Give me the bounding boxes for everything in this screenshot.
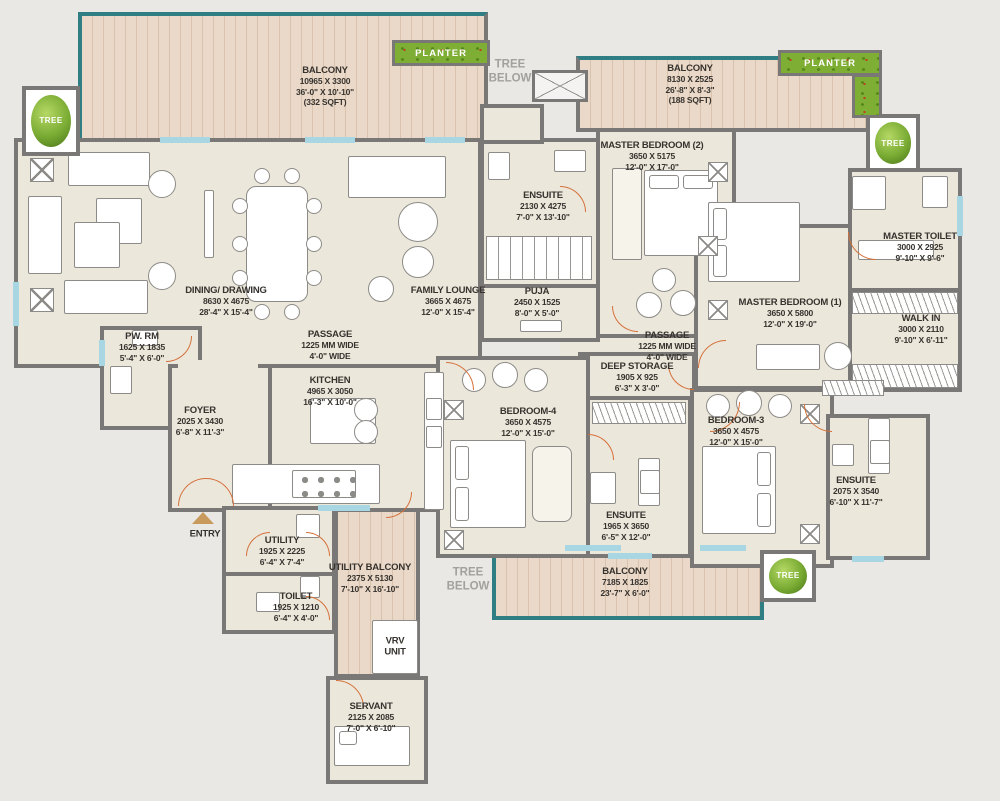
window bbox=[13, 282, 19, 326]
tree-label: TREE bbox=[881, 139, 904, 148]
tree-box-bottom: TREE bbox=[760, 550, 816, 602]
label-tree-below-top: TREE BELOW bbox=[480, 58, 540, 87]
planter-label: PLANTER bbox=[415, 48, 467, 59]
tv-unit-icon bbox=[204, 190, 214, 258]
toilet-wc-icon bbox=[110, 366, 132, 394]
bed-icon bbox=[450, 440, 526, 528]
label-bedroom-3: BEDROOM-33650 X 4575 12'-0" X 15'-0" bbox=[708, 415, 764, 447]
wardrobe-hatch bbox=[822, 380, 884, 396]
shower-icon bbox=[852, 176, 886, 210]
label-master-bedroom-2: MASTER BEDROOM (2)3650 X 5175 12'-0" X 1… bbox=[600, 140, 703, 172]
label-kitchen: KITCHEN4965 X 3050 16'-3" X 10'-0" bbox=[303, 375, 357, 407]
label-deep-storage: DEEP STORAGE1905 X 925 6'-3" X 3'-0" bbox=[601, 361, 674, 393]
sofa-icon bbox=[348, 156, 446, 198]
tree-label: TREE bbox=[39, 116, 62, 125]
shower-icon bbox=[832, 444, 854, 466]
label-dining-drawing: DINING/ DRAWING8630 X 4675 28'-4" X 15'-… bbox=[185, 285, 266, 317]
window bbox=[160, 137, 210, 143]
window bbox=[700, 545, 746, 551]
elevator-shaft-icon bbox=[532, 70, 588, 102]
shower-icon bbox=[590, 472, 616, 504]
dining-chair-icon bbox=[284, 304, 300, 320]
armchair-icon bbox=[768, 394, 792, 418]
dining-chair-icon bbox=[254, 168, 270, 184]
toilet-wc-icon bbox=[488, 152, 510, 180]
side-table-icon bbox=[444, 530, 464, 550]
label-master-toilet: MASTER TOILET3000 X 2925 9'-10" X 9'-6" bbox=[883, 231, 957, 263]
toilet-wc-icon bbox=[870, 440, 890, 464]
tree-icon: TREE bbox=[31, 95, 71, 147]
dining-chair-icon bbox=[232, 236, 248, 252]
label-master-bedroom-1: MASTER BEDROOM (1)3650 X 5800 12'-0" X 1… bbox=[738, 297, 841, 329]
label-family-lounge: FAMILY LOUNGE3665 X 4675 12'-0" X 15'-4" bbox=[411, 285, 485, 317]
round-table-icon bbox=[824, 342, 852, 370]
side-table-icon bbox=[698, 236, 718, 256]
label-balcony-bottom: BALCONY7185 X 1825 23'-7" X 6'-0" bbox=[601, 566, 650, 598]
planter-label: PLANTER bbox=[804, 58, 856, 69]
tree-box-top-left: TREE bbox=[22, 86, 80, 156]
window bbox=[425, 137, 465, 143]
armchair-icon bbox=[636, 292, 662, 318]
window bbox=[565, 545, 621, 551]
side-table-icon bbox=[708, 162, 728, 182]
label-puja: PUJA2450 X 1525 8'-0" X 5'-0" bbox=[514, 286, 560, 318]
sofa-icon bbox=[64, 280, 148, 314]
dining-chair-icon bbox=[284, 168, 300, 184]
room-foyer-opening bbox=[178, 360, 258, 372]
label-entry: ENTRY bbox=[190, 528, 221, 539]
label-vrv-unit: VRV UNIT bbox=[378, 636, 412, 659]
tree-box-right: TREE bbox=[866, 114, 920, 172]
label-tree-below-bottom: TREE BELOW bbox=[438, 566, 498, 595]
dining-chair-icon bbox=[232, 198, 248, 214]
window bbox=[957, 196, 963, 236]
label-utility: UTILITY1925 X 2225 6'-4" X 7'-4" bbox=[259, 535, 305, 567]
armchair-icon bbox=[524, 368, 548, 392]
label-passage-left: PASSAGE1225 MM WIDE 4'-0" WIDE bbox=[301, 329, 359, 361]
label-balcony-top-right: BALCONY8130 X 2525 26'-8" X 8'-3"(188 SQ… bbox=[666, 63, 715, 105]
wardrobe-hatch bbox=[852, 292, 958, 314]
label-powder-room: PW. RM1625 X 1835 5'-4" X 6'-0" bbox=[119, 331, 165, 363]
pouf-icon bbox=[398, 202, 438, 242]
label-bedroom-4: BEDROOM-43650 X 4575 12'-0" X 15'-0" bbox=[500, 406, 556, 438]
tree-icon: TREE bbox=[875, 122, 912, 164]
bar-stool-icon bbox=[354, 398, 378, 422]
window bbox=[305, 137, 355, 143]
bar-stool-icon bbox=[354, 420, 378, 444]
bench-icon bbox=[756, 344, 820, 370]
bench-icon bbox=[532, 446, 572, 522]
bed-icon bbox=[708, 202, 800, 282]
planter-top: PLANTER bbox=[392, 40, 490, 66]
sink-icon bbox=[426, 398, 442, 420]
side-table-icon bbox=[30, 288, 54, 312]
puja-cabinet-icon bbox=[520, 320, 562, 332]
side-table-icon bbox=[30, 158, 54, 182]
label-balcony-top-left: BALCONY10965 X 3300 36'-0" X 10'-10"(332… bbox=[296, 65, 354, 107]
dining-chair-icon bbox=[306, 270, 322, 286]
dining-chair-icon bbox=[306, 198, 322, 214]
sofa-icon bbox=[28, 196, 62, 274]
label-toilet: TOILET1925 X 1210 6'-4" X 4'-0" bbox=[273, 591, 319, 623]
armchair-icon bbox=[148, 170, 176, 198]
tree-label: TREE bbox=[776, 571, 799, 580]
entry-arrow-icon bbox=[192, 512, 214, 524]
label-ensuite-bedroom-3: ENSUITE2075 X 3540 6'-10" X 11'-7" bbox=[829, 475, 882, 507]
armchair-icon bbox=[148, 262, 176, 290]
toilet-wc-icon bbox=[922, 176, 948, 208]
window bbox=[99, 340, 105, 366]
room-ensuite-top-lobby bbox=[480, 104, 544, 144]
armchair-icon bbox=[368, 276, 394, 302]
label-walk-in: WALK IN3000 X 2110 9'-10" X 6'-11" bbox=[894, 313, 947, 345]
side-table-icon bbox=[444, 400, 464, 420]
label-ensuite-bedroom-4: ENSUITE1965 X 3650 6'-5" X 12'-0" bbox=[602, 510, 651, 542]
label-servant: SERVANT2125 X 2085 7'-0" X 6'-10" bbox=[347, 701, 396, 733]
bed-icon bbox=[702, 446, 776, 534]
sink-icon bbox=[426, 426, 442, 448]
label-passage-right: PASSAGE1225 MM WIDE 4'-0" WIDE bbox=[638, 330, 696, 362]
floor-plan: TREE TREE TREE PLANTER PLANTER bbox=[0, 0, 1000, 801]
stairs-icon bbox=[486, 236, 592, 280]
window bbox=[608, 553, 652, 559]
toilet-wc-icon bbox=[640, 470, 660, 494]
label-utility-balcony: UTILITY BALCONY2375 X 5130 7'-10" X 16'-… bbox=[329, 562, 411, 594]
wardrobe-hatch bbox=[592, 402, 686, 424]
armchair-icon bbox=[670, 290, 696, 316]
tree-icon: TREE bbox=[769, 558, 807, 595]
round-table-icon bbox=[652, 268, 676, 292]
dining-chair-icon bbox=[306, 236, 322, 252]
planter-right: PLANTER bbox=[778, 50, 882, 76]
planter-right-arm bbox=[852, 74, 882, 118]
side-table-icon bbox=[800, 524, 820, 544]
hob-icon bbox=[292, 470, 356, 498]
rug-icon bbox=[612, 168, 642, 260]
window bbox=[852, 556, 884, 562]
window bbox=[318, 505, 370, 511]
sofa-icon bbox=[68, 152, 150, 186]
balcony-top-left-deck bbox=[78, 12, 488, 142]
coffee-table-icon bbox=[74, 222, 120, 268]
dining-chair-icon bbox=[232, 270, 248, 286]
pouf-icon bbox=[402, 246, 434, 278]
vanity-icon bbox=[554, 150, 586, 172]
label-ensuite-top: ENSUITE2130 X 4275 7'-0" X 13'-10" bbox=[516, 190, 570, 222]
label-foyer: FOYER2025 X 3430 6'-8" X 11'-3" bbox=[176, 405, 225, 437]
side-table-icon bbox=[708, 300, 728, 320]
round-table-icon bbox=[492, 362, 518, 388]
